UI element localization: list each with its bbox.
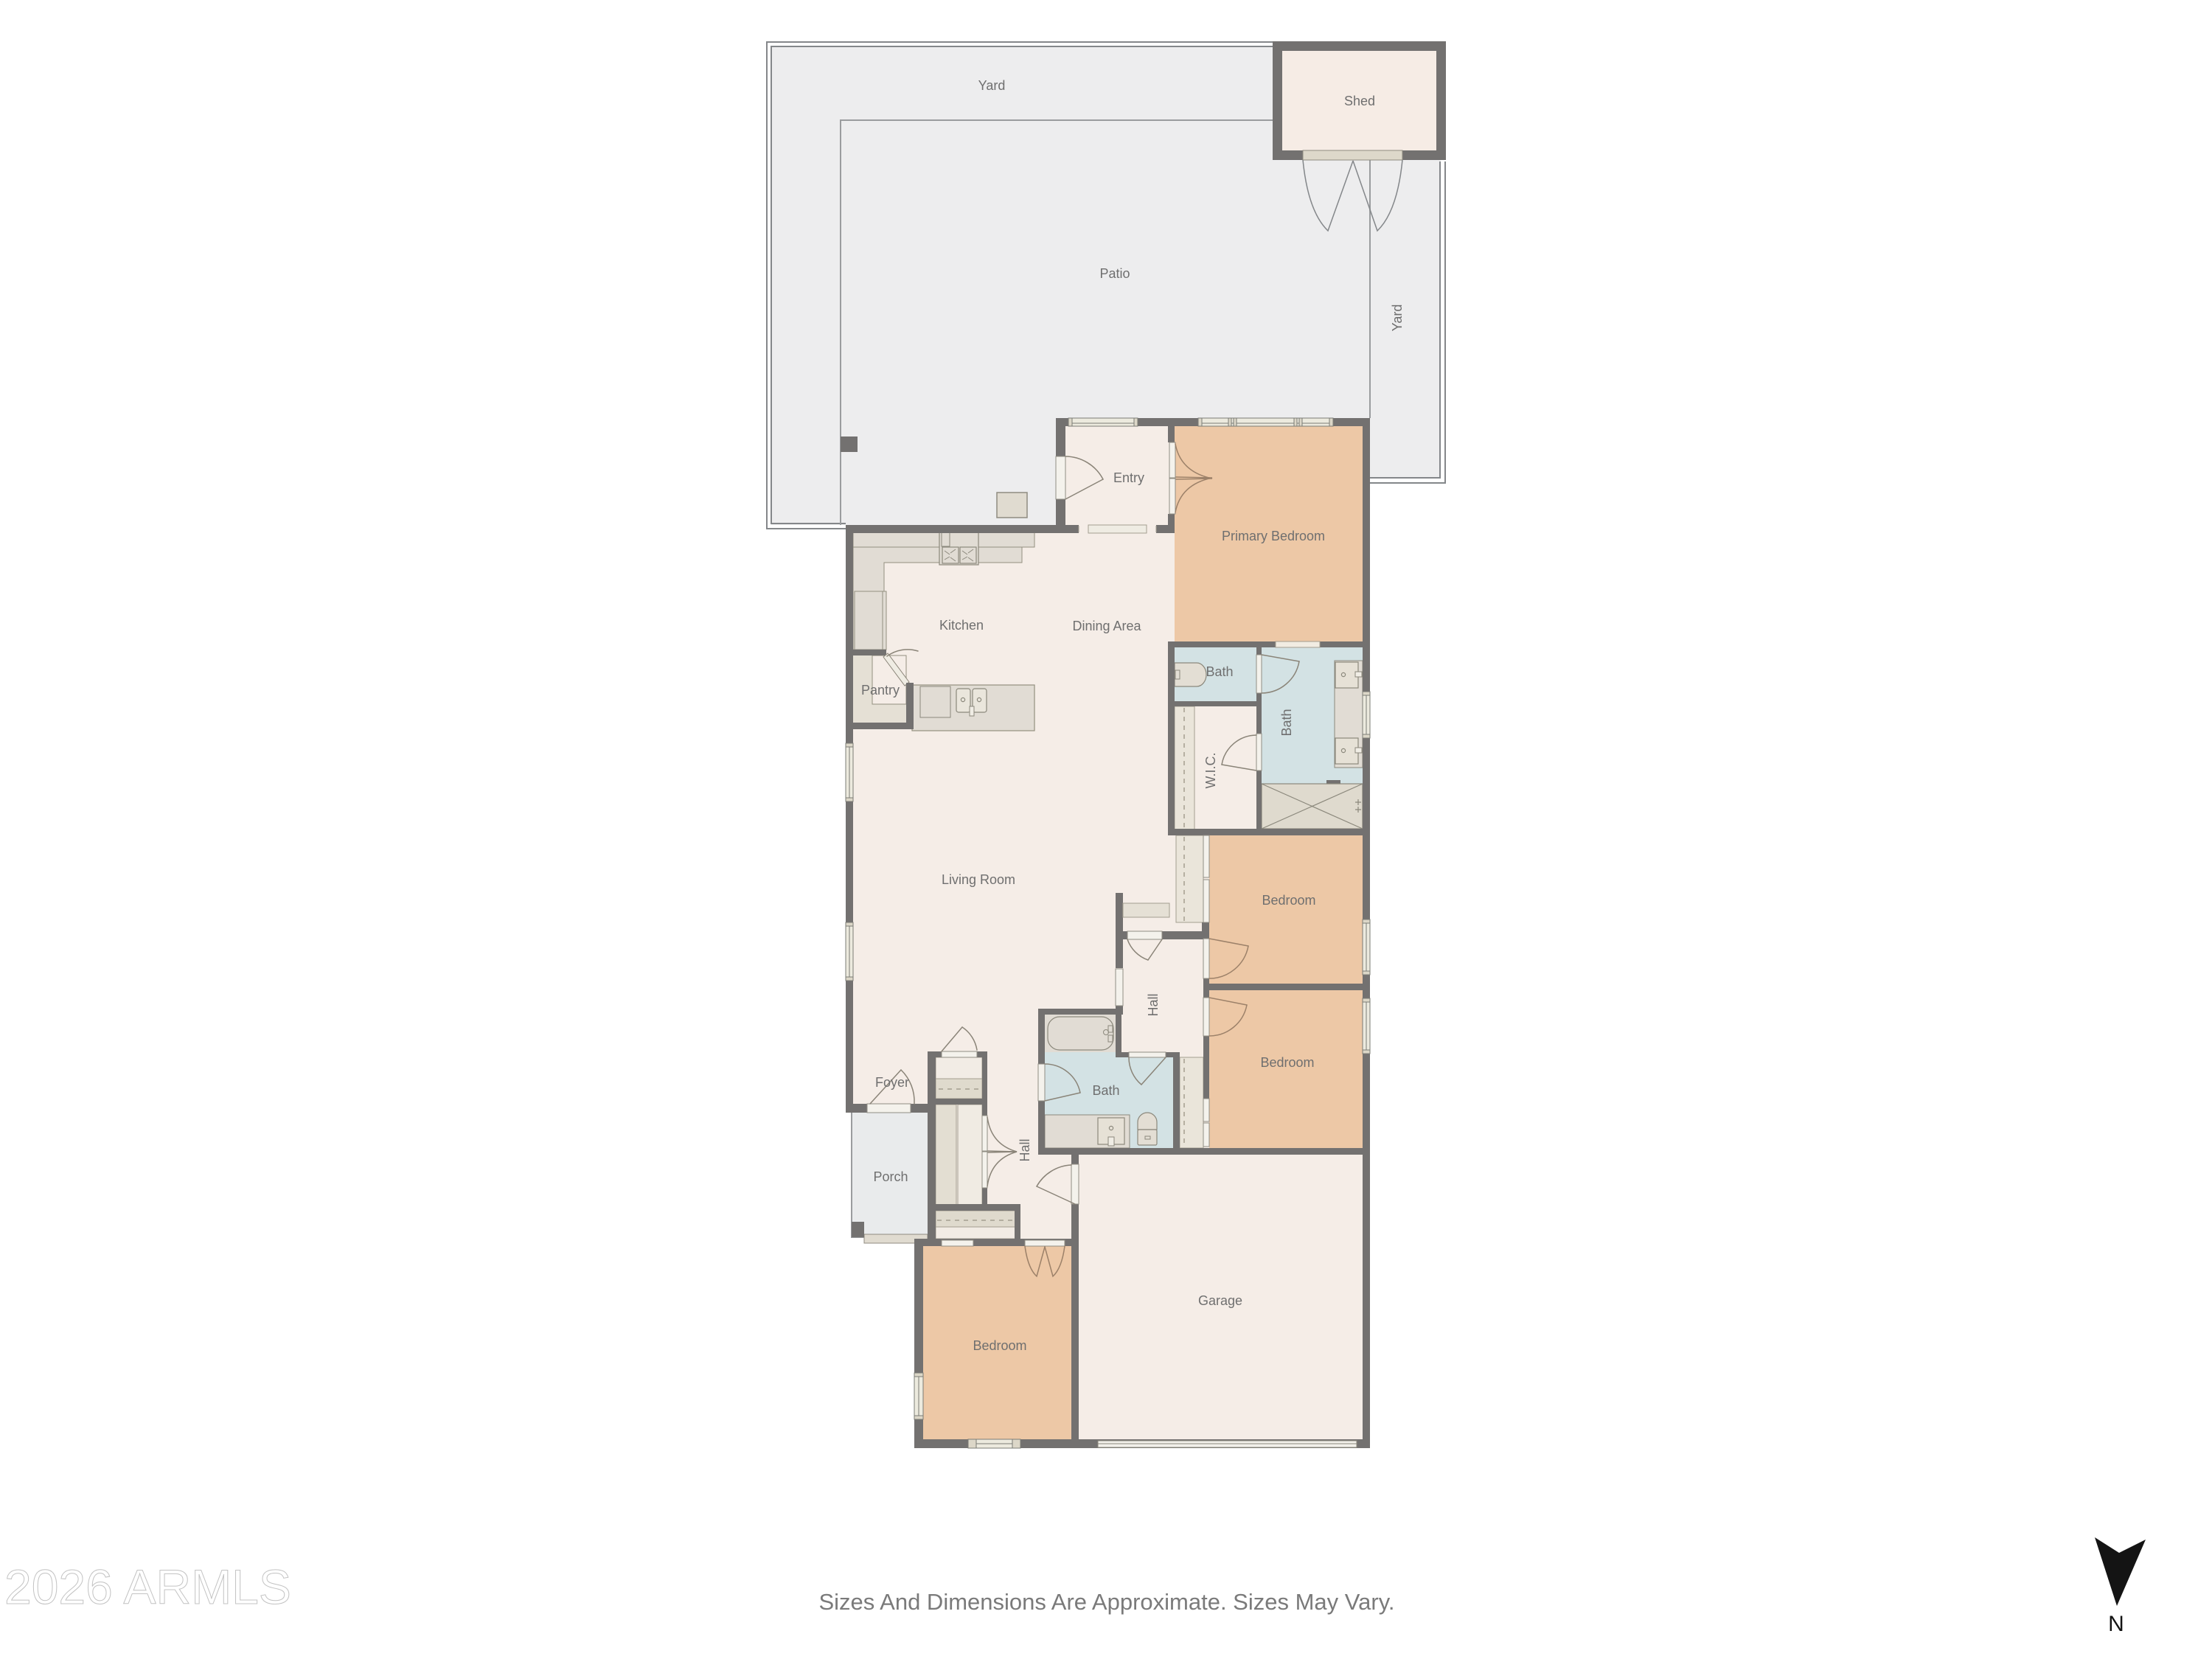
svg-text:Bath: Bath (1279, 709, 1294, 736)
svg-text:Primary Bedroom: Primary Bedroom (1222, 529, 1325, 543)
svg-text:W.I.C.: W.I.C. (1203, 753, 1218, 789)
svg-text:Porch: Porch (873, 1169, 908, 1184)
svg-text:Shed: Shed (1344, 94, 1375, 108)
svg-text:Entry: Entry (1113, 470, 1144, 485)
svg-text:Hall: Hall (1018, 1138, 1032, 1161)
svg-text:Patio: Patio (1099, 266, 1130, 281)
svg-text:Sizes And Dimensions Are Appro: Sizes And Dimensions Are Approximate. Si… (818, 1589, 1394, 1615)
svg-text:Dining Area: Dining Area (1072, 619, 1141, 633)
svg-text:Yard: Yard (1390, 305, 1405, 332)
svg-text:Garage: Garage (1198, 1293, 1242, 1308)
svg-text:Bedroom: Bedroom (1262, 893, 1315, 908)
svg-text:Pantry: Pantry (861, 683, 900, 698)
svg-text:Bedroom: Bedroom (973, 1338, 1026, 1353)
svg-text:Hall: Hall (1146, 993, 1161, 1016)
svg-text:Bedroom: Bedroom (1260, 1055, 1314, 1070)
svg-text:2026 ARMLS: 2026 ARMLS (4, 1559, 291, 1614)
svg-text:Bath: Bath (1092, 1083, 1119, 1098)
svg-text:Kitchen: Kitchen (939, 618, 984, 633)
svg-text:Foyer: Foyer (875, 1075, 909, 1090)
svg-text:Bath: Bath (1206, 664, 1233, 679)
svg-text:N: N (2108, 1612, 2124, 1636)
svg-text:Yard: Yard (978, 78, 1006, 93)
svg-text:Living Room: Living Room (942, 872, 1015, 887)
